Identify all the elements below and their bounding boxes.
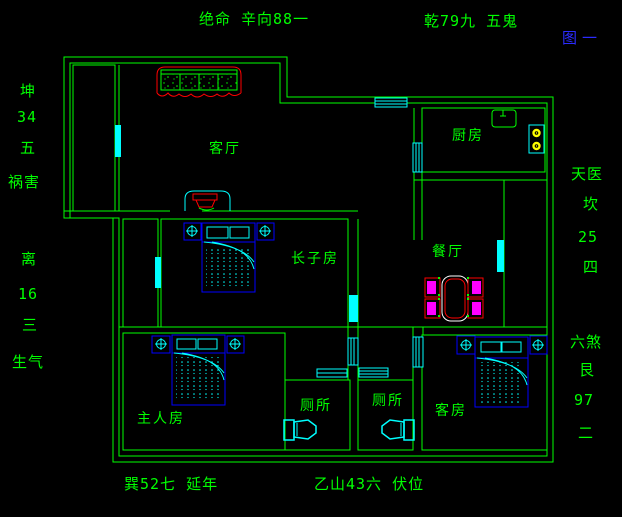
tv-icon [185, 191, 230, 211]
room-label-toilet-left: 厕所 [300, 399, 332, 414]
closet-room [123, 219, 158, 327]
annotation-top-right: 乾79九 五鬼 [424, 14, 518, 30]
room-label-toilet-right: 厕所 [372, 394, 404, 409]
toilet-left-window-icon [317, 369, 347, 377]
figure-number-label: 图一 [562, 31, 602, 47]
room-label-living: 客厅 [209, 142, 241, 157]
dining-table-icon [442, 276, 468, 321]
annotation-bottom-left: 巽52七 延年 [124, 477, 218, 493]
stove-icon [529, 125, 544, 153]
closet-door-icon [155, 257, 161, 288]
annotation-bottom-center: 乙山43六 伏位 [314, 477, 424, 493]
right-corridor [504, 180, 547, 327]
floor-plan-canvas: 绝命 辛向88一 乾79九 五鬼 图一 坤 34 五 祸害 离 16 三 生气 … [0, 0, 622, 517]
annotation-left-upper-3: 五 [20, 141, 36, 157]
annotation-left-upper-2: 34 [17, 110, 37, 126]
bed-guest-icon [475, 337, 528, 407]
eldest-window-icon [349, 295, 358, 322]
annotation-top-left: 绝命 辛向88一 [199, 12, 309, 28]
room-label-kitchen: 厨房 [452, 129, 484, 144]
annotation-left-upper-1: 坤 [20, 84, 36, 100]
top-window-icon [375, 98, 407, 107]
toilet-right-icon [382, 420, 414, 440]
annotation-right-upper-2: 坎 [583, 197, 599, 213]
annotation-right-upper-4: 四 [583, 260, 599, 276]
balcony-room [73, 65, 115, 211]
kitchen-window-icon [413, 143, 422, 172]
hall-window-left-icon [348, 338, 358, 365]
corridor-window-icon [497, 240, 504, 272]
room-label-guest: 客房 [435, 404, 467, 419]
living-window-icon [115, 125, 121, 157]
bed-eldest-icon [202, 223, 255, 292]
annotation-right-lower-3: 97 [574, 393, 594, 409]
dining-chairs-icon [425, 277, 483, 318]
hall-window-right-icon [413, 337, 423, 367]
annotation-right-upper-1: 天医 [571, 167, 603, 183]
annotation-left-lower-3: 三 [22, 318, 38, 334]
toilet-right-window-icon [359, 368, 388, 377]
toilet-left-icon [284, 420, 316, 440]
kitchen-left-wall-ext [414, 108, 422, 240]
bed-master-icon [172, 335, 225, 405]
annotation-right-lower-4: 二 [578, 426, 594, 442]
annotation-right-upper-3: 25 [578, 230, 598, 246]
annotation-right-lower-1: 六煞 [570, 335, 602, 351]
room-label-master: 主人房 [137, 412, 185, 427]
annotation-right-lower-2: 艮 [579, 363, 595, 379]
annotation-left-lower-4: 生气 [12, 355, 44, 371]
sink-icon [492, 110, 516, 127]
annotation-left-lower-2: 16 [18, 287, 38, 303]
annotation-left-lower-1: 离 [21, 252, 37, 268]
room-label-dining: 餐厅 [432, 245, 464, 260]
room-label-eldest-son: 长子房 [291, 252, 339, 267]
annotation-left-upper-4: 祸害 [8, 175, 40, 191]
sofa-icon [157, 67, 241, 97]
